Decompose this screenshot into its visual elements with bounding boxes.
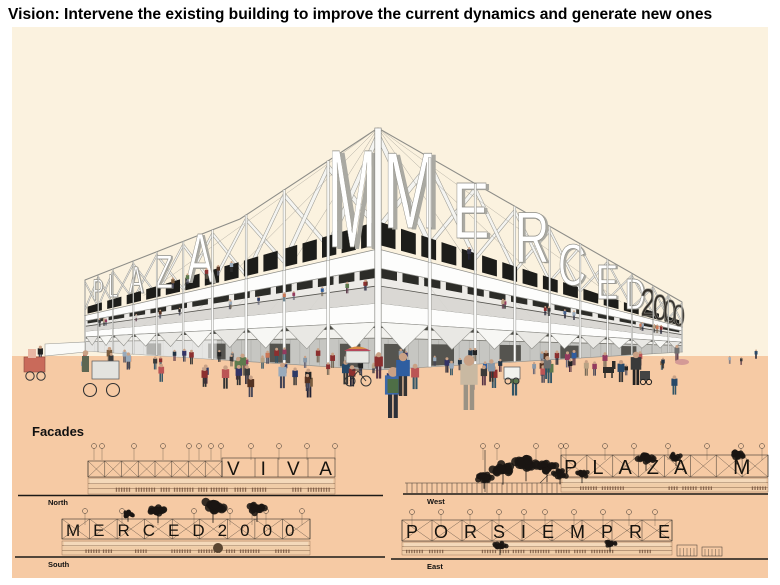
- svg-text:M: M: [328, 121, 377, 277]
- svg-text:E: E: [452, 166, 489, 255]
- svg-text:A: A: [129, 259, 144, 302]
- svg-text:West: West: [427, 497, 445, 506]
- svg-text:South: South: [48, 560, 70, 569]
- svg-text:Vision: Intervene the existing: Vision: Intervene the existing building …: [8, 6, 713, 23]
- svg-text:PORSIEMPRE: PORSIEMPRE: [406, 522, 686, 542]
- svg-text:North: North: [48, 498, 68, 507]
- svg-text:R: R: [515, 197, 550, 278]
- svg-text:East: East: [427, 562, 443, 571]
- svg-text:MERCED2000: MERCED2000: [66, 521, 308, 540]
- svg-text:Facades: Facades: [32, 424, 84, 439]
- svg-text:A: A: [186, 220, 214, 298]
- svg-text:Z: Z: [155, 247, 172, 299]
- svg-text:0: 0: [673, 298, 685, 333]
- svg-text:VIVA: VIVA: [227, 459, 353, 480]
- svg-text:C: C: [558, 232, 586, 298]
